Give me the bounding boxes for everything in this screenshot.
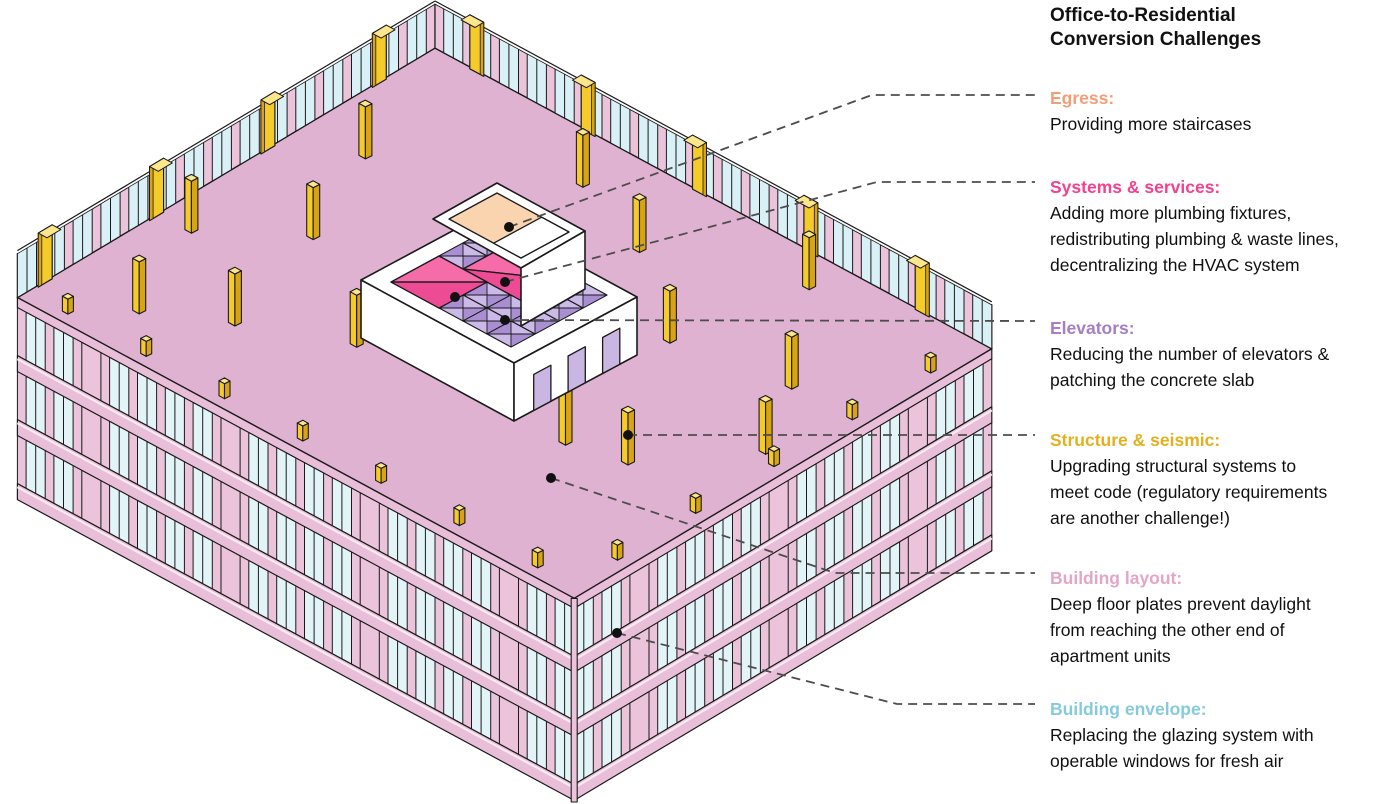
legend-heading-layout: Building layout: — [1050, 566, 1311, 591]
callout-dot-systems — [500, 277, 510, 287]
legend-heading-structure: Structure & seismic: — [1050, 428, 1327, 453]
callout-dot-envelope — [612, 628, 622, 638]
legend-heading-envelope: Building envelope: — [1050, 697, 1314, 722]
legend-heading-systems: Systems & services: — [1050, 175, 1339, 200]
legend-section-layout: Building layout:Deep floor plates preven… — [1050, 566, 1311, 669]
legend-title: Office-to-Residential Conversion Challen… — [1050, 4, 1261, 52]
callout-dot-systems-2 — [450, 292, 460, 302]
legend-line: redistributing plumbing & waste lines, — [1050, 226, 1339, 252]
callout-dot-structure — [623, 430, 633, 440]
canvas: Office-to-Residential Conversion Challen… — [0, 0, 1400, 804]
legend-line: Adding more plumbing fixtures, — [1050, 200, 1339, 226]
legend-line: Reducing the number of elevators & — [1050, 341, 1329, 367]
legend-line: Providing more staircases — [1050, 111, 1251, 137]
legend-line: Replacing the glazing system with — [1050, 722, 1314, 748]
legend-section-systems: Systems & services:Adding more plumbing … — [1050, 175, 1339, 278]
legend-section-envelope: Building envelope:Replacing the glazing … — [1050, 697, 1314, 774]
callout-dot-egress — [504, 222, 514, 232]
legend-line: are another challenge!) — [1050, 505, 1327, 531]
legend-line: apartment units — [1050, 643, 1311, 669]
legend-line: operable windows for fresh air — [1050, 748, 1314, 774]
legend-section-structure: Structure & seismic:Upgrading structural… — [1050, 428, 1327, 531]
legend-line: meet code (regulatory requirements — [1050, 479, 1327, 505]
legend-line: patching the concrete slab — [1050, 367, 1329, 393]
legend-heading-elevators: Elevators: — [1050, 316, 1329, 341]
legend: Office-to-Residential Conversion Challen… — [1050, 0, 1400, 804]
callout-dot-layout — [546, 473, 556, 483]
legend-heading-egress: Egress: — [1050, 86, 1251, 111]
callout-dot-elevators — [500, 315, 510, 325]
legend-section-egress: Egress:Providing more staircases — [1050, 86, 1251, 137]
legend-line: from reaching the other end of — [1050, 617, 1311, 643]
legend-section-elevators: Elevators:Reducing the number of elevato… — [1050, 316, 1329, 393]
legend-line: decentralizing the HVAC system — [1050, 252, 1339, 278]
legend-title-line2: Conversion Challenges — [1050, 28, 1261, 52]
legend-title-line1: Office-to-Residential — [1050, 4, 1261, 28]
facade-corner-post — [571, 598, 577, 802]
legend-line: Upgrading structural systems to — [1050, 453, 1327, 479]
legend-line: Deep floor plates prevent daylight — [1050, 591, 1311, 617]
